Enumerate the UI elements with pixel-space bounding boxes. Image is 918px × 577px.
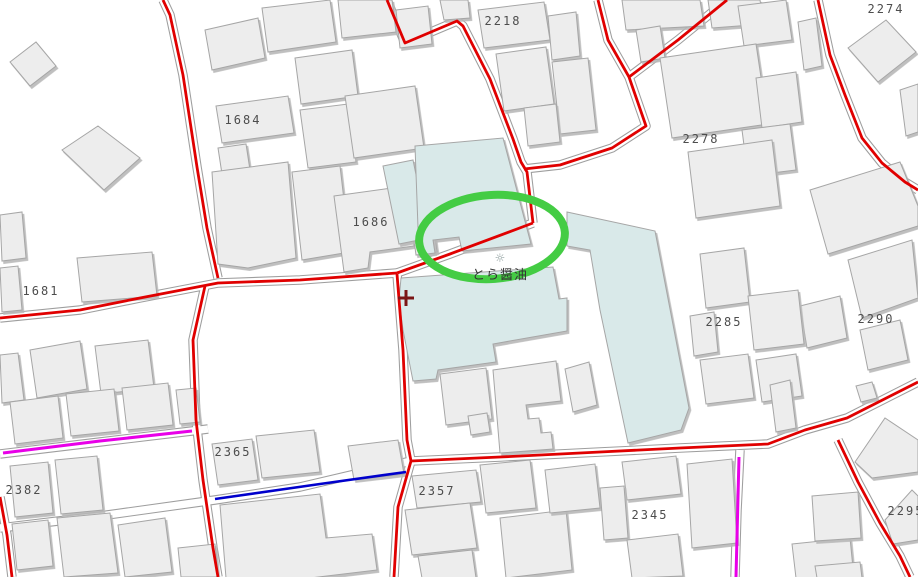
building-footprint <box>700 248 750 308</box>
building-footprint <box>12 520 53 570</box>
building-footprint <box>396 6 432 48</box>
building-footprint <box>600 486 628 540</box>
building-footprint <box>885 490 918 544</box>
building-footprint <box>496 47 554 111</box>
building-footprint <box>55 456 103 514</box>
building-footprint <box>10 462 53 517</box>
building-footprint <box>687 459 737 548</box>
building-footprint <box>66 389 119 436</box>
building-footprint <box>405 503 477 555</box>
building-footprint <box>345 86 424 158</box>
building-footprint <box>810 162 918 254</box>
building-footprint <box>565 362 597 412</box>
building-footprint <box>118 518 172 577</box>
building-footprint <box>418 550 476 577</box>
building-footprint <box>478 2 550 48</box>
building-footprint <box>800 296 847 348</box>
building-footprint <box>548 12 580 60</box>
building-footprint <box>216 96 294 143</box>
building-footprint <box>0 266 22 312</box>
building-footprint <box>627 534 683 577</box>
building-layer <box>0 0 918 577</box>
building-footprint <box>440 0 470 20</box>
map-viewport[interactable]: ☼ とら醤油 221822742278168416861681228522902… <box>0 0 918 577</box>
building-footprint <box>412 470 481 508</box>
building-footprint <box>545 464 600 513</box>
building-footprint <box>688 140 780 218</box>
building-footprint <box>756 72 802 128</box>
building-footprint <box>212 439 258 485</box>
building-footprint <box>812 492 861 541</box>
building-footprint <box>212 162 296 268</box>
building-footprint <box>122 383 173 430</box>
building-footprint <box>690 312 718 356</box>
building-footprint <box>524 104 560 146</box>
building-footprint <box>848 240 918 318</box>
building-footprint <box>262 0 336 52</box>
building-footprint <box>856 382 877 402</box>
building-footprint <box>552 58 596 134</box>
building-footprint <box>500 510 572 577</box>
building-footprint <box>700 354 754 404</box>
building-footprint <box>62 126 140 190</box>
building-footprint <box>748 290 804 350</box>
building-footprint <box>57 513 118 577</box>
building-footprint <box>0 353 24 403</box>
building-footprint <box>622 456 681 500</box>
building-footprint <box>10 42 56 86</box>
building-footprint <box>10 396 63 444</box>
building-footprint <box>660 44 768 138</box>
building-footprint <box>798 18 822 70</box>
building-footprint <box>493 361 561 453</box>
building-footprint <box>338 0 396 38</box>
building-footprint <box>468 413 490 435</box>
building-footprint <box>636 26 665 62</box>
building-footprint <box>848 20 916 82</box>
building-footprint <box>0 212 26 261</box>
building-footprint <box>480 460 536 513</box>
building-footprint <box>256 430 320 478</box>
building-footprint <box>738 0 792 46</box>
map-canvas <box>0 0 918 577</box>
building-footprint <box>860 320 908 370</box>
building-footprint <box>220 494 377 577</box>
building-footprint <box>77 252 157 302</box>
building-footprint <box>622 0 704 30</box>
building-footprint <box>900 84 918 136</box>
building-footprint <box>30 341 87 398</box>
building-footprint <box>855 418 918 478</box>
building-footprint <box>205 18 265 70</box>
